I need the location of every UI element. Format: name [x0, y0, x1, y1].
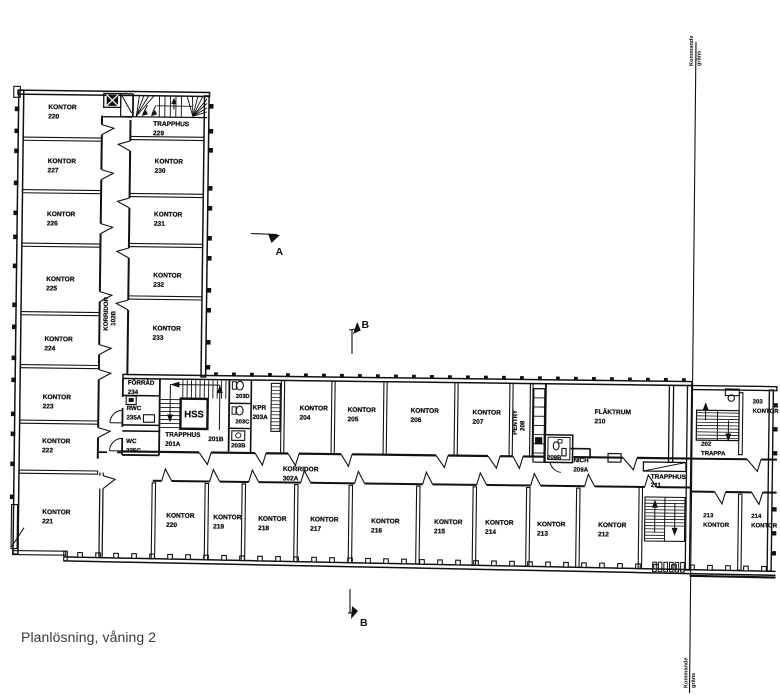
- svg-text:PENTRY: PENTRY: [512, 409, 519, 435]
- svg-text:A: A: [276, 246, 284, 258]
- svg-text:TRAPPHUS: TRAPPHUS: [651, 474, 687, 481]
- svg-text:203D: 203D: [236, 394, 250, 400]
- svg-text:102B: 102B: [110, 310, 117, 325]
- svg-text:KORRIDOR: KORRIDOR: [103, 296, 110, 330]
- svg-text:gräns: gräns: [691, 673, 697, 688]
- svg-text:Planlösning, våning 2: Planlösning, våning 2: [21, 629, 156, 645]
- svg-text:211: 211: [651, 482, 662, 489]
- svg-text:B: B: [360, 617, 368, 629]
- svg-text:209B: 209B: [547, 455, 562, 461]
- svg-text:208: 208: [519, 420, 526, 431]
- svg-text:Kommande: Kommande: [689, 36, 695, 66]
- svg-text:203C: 203C: [235, 419, 250, 425]
- svg-text:203B: 203B: [231, 443, 246, 449]
- svg-text:201B: 201B: [208, 436, 224, 443]
- svg-text:Kommande: Kommande: [684, 658, 690, 688]
- svg-text:HSS: HSS: [184, 409, 204, 420]
- svg-text:gräns: gräns: [697, 51, 703, 66]
- svg-text:B: B: [362, 319, 370, 331]
